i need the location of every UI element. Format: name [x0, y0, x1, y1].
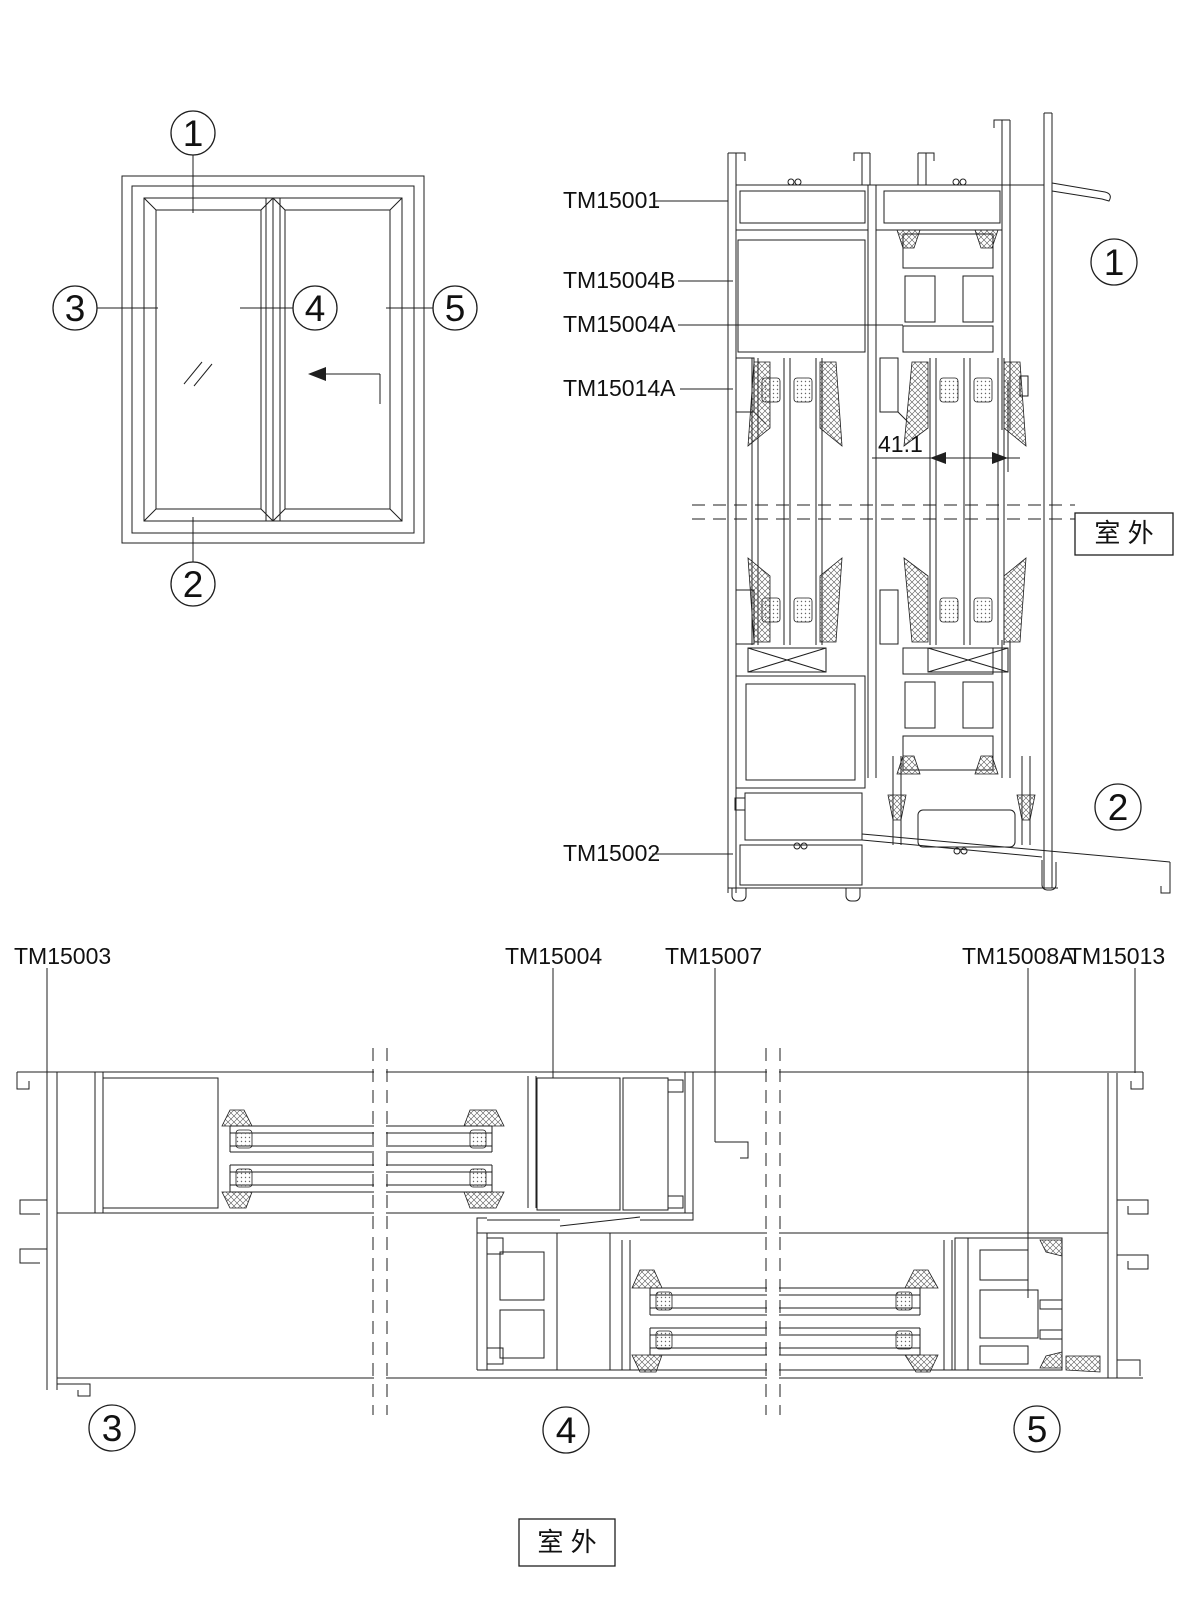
label-tm15004a: TM15004A — [563, 311, 676, 337]
label-tm15004: TM15004 — [505, 943, 602, 969]
callout-1-number: 1 — [183, 113, 204, 154]
sliding-sash-row — [477, 1233, 1108, 1372]
section-callout-4: 4 — [543, 1407, 589, 1453]
outdoor-label-vertical: 室 外 — [1075, 513, 1173, 555]
dimension-text: 41.1 — [878, 431, 923, 457]
label-tm15008a: TM15008A — [962, 943, 1075, 969]
label-tm15003: TM15003 — [14, 943, 111, 969]
fixed-sash-bottom — [736, 676, 865, 788]
label-tm15002: TM15002 — [563, 840, 660, 866]
sliding-sash-bottom — [897, 648, 998, 774]
label-tm15013: TM15013 — [1068, 943, 1165, 969]
slide-direction-arrow — [308, 367, 380, 404]
break-mask-2 — [767, 1040, 779, 1420]
break-mask-1 — [374, 1040, 386, 1420]
sill-frame — [728, 756, 1170, 901]
sliding-sash-top — [897, 230, 998, 352]
right-glass-opening — [285, 210, 390, 509]
outdoor-text-horizontal: 室 外 — [537, 1527, 596, 1557]
section-callout-1-number: 1 — [1104, 242, 1125, 283]
section-callout-3-number: 3 — [102, 1408, 123, 1449]
callout-4: 4 — [293, 286, 337, 330]
fixed-meeting-stile — [537, 1072, 748, 1213]
left-jamb — [17, 1072, 693, 1396]
vertical-section: 41.1 室 外 TM15001 TM15004B TM15004A TM150… — [563, 113, 1173, 901]
lock-stile — [955, 1238, 1062, 1370]
section-callout-2-number: 2 — [1108, 787, 1129, 828]
callout-2-number: 2 — [183, 564, 204, 605]
label-tm15007: TM15007 — [665, 943, 762, 969]
callout-3: 3 — [53, 286, 97, 330]
section-callout-5-number: 5 — [1027, 1409, 1048, 1450]
cad-drawing: 1 2 3 4 5 — [0, 0, 1200, 1620]
glass-panes — [752, 358, 1004, 645]
callout-5: 5 — [433, 286, 477, 330]
label-tm15001: TM15001 — [563, 187, 660, 213]
thermal-break-right — [928, 648, 1008, 672]
head-drip-fin — [1052, 183, 1110, 201]
callout-2: 2 — [171, 562, 215, 606]
left-glass-opening — [156, 210, 261, 509]
vertical-section-labels: TM15001 TM15004B TM15004A TM15014A TM150… — [563, 187, 903, 866]
section-callout-3: 3 — [89, 1405, 135, 1451]
right-jamb — [1066, 1072, 1148, 1378]
callout-5-number: 5 — [445, 288, 466, 329]
right-sash — [273, 198, 402, 521]
thermal-break-left — [748, 648, 826, 672]
sill-drip-leg — [1161, 862, 1170, 893]
glazing-bead-right — [880, 358, 898, 412]
outdoor-text-vertical: 室 外 — [1094, 518, 1153, 548]
glazing-bottom — [736, 558, 1026, 672]
horizontal-section-labels: TM15003 TM15004 TM15007 TM15008A TM15013 — [14, 943, 1165, 1298]
elevation-leader-lines — [97, 155, 433, 562]
section-callout-1: 1 — [1091, 239, 1137, 285]
elevation-view: 1 2 3 4 5 — [53, 111, 477, 606]
outdoor-label-horizontal: 室 外 — [519, 1519, 615, 1566]
section-callout-4-number: 4 — [556, 1410, 577, 1451]
horizontal-section: TM15003 TM15004 TM15007 TM15008A TM15013… — [14, 943, 1165, 1566]
sash-adapter — [477, 1213, 693, 1233]
callout-3-number: 3 — [65, 288, 86, 329]
keeper-profile — [715, 1142, 748, 1158]
label-tm15014a: TM15014A — [563, 375, 676, 401]
fixed-sash-top-chamber — [738, 240, 865, 352]
callout-4-number: 4 — [305, 288, 326, 329]
section-callout-2: 2 — [1095, 784, 1141, 830]
section-callout-5: 5 — [1014, 1406, 1060, 1452]
outdoor-boundary-dashes — [692, 505, 1075, 519]
callout-1: 1 — [171, 111, 215, 155]
glass-symbol — [184, 362, 212, 386]
head-frame — [736, 153, 1044, 230]
left-sash — [144, 198, 273, 521]
label-tm15004b: TM15004B — [563, 267, 676, 293]
